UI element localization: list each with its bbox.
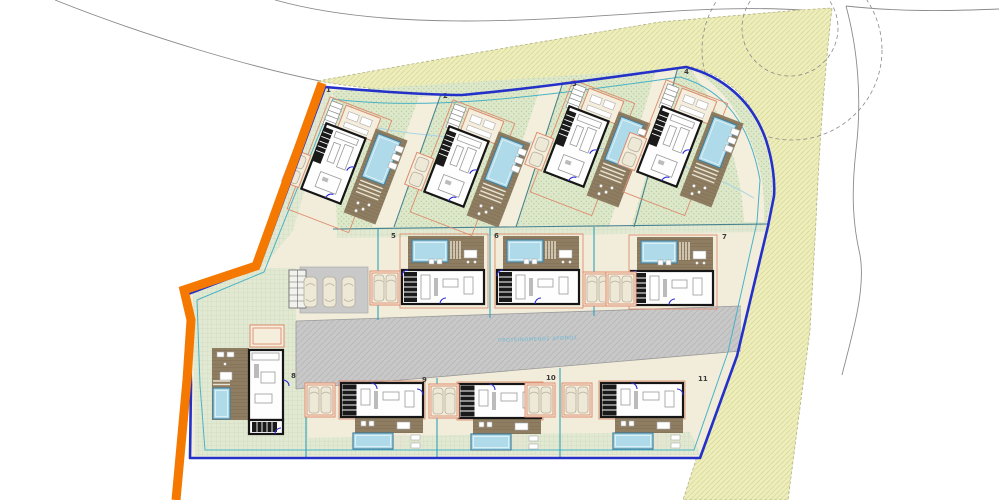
site-plan-drawing: ΠΡΟΤΕΙΝΟΜΕΝΟΣ ΔΡΟΜΟΣ 1234567891011 [0,0,1000,500]
plot-number-label: 8 [291,372,296,380]
villa-plot-7 [629,235,717,309]
guest-car [323,277,336,307]
plot-number-label: 4 [684,68,689,76]
plot-number-label: 10 [546,374,556,382]
plot-number-label: 5 [391,232,396,240]
guest-car [304,277,317,307]
villa-plot-6 [495,234,583,308]
parking-bay [606,272,636,306]
plot-number-label: 6 [494,232,499,240]
plot-number-label: 11 [698,375,708,383]
plot-number-label: 9 [422,376,427,384]
pergola-structure [289,270,306,308]
parking-bay [525,383,555,417]
guest-cars-layer [304,277,355,307]
site-plan-canvas: ΠΡΟΤΕΙΝΟΜΕΝΟΣ ΔΡΟΜΟΣ 1234567891011 [0,0,1000,500]
plot-number-label: 7 [722,233,727,241]
parking-bay [305,383,335,417]
parking-bay [370,271,400,305]
parking-bay [429,384,459,418]
guest-car [342,277,355,307]
villa-plot-5 [400,234,488,308]
parking-bay [562,383,592,417]
